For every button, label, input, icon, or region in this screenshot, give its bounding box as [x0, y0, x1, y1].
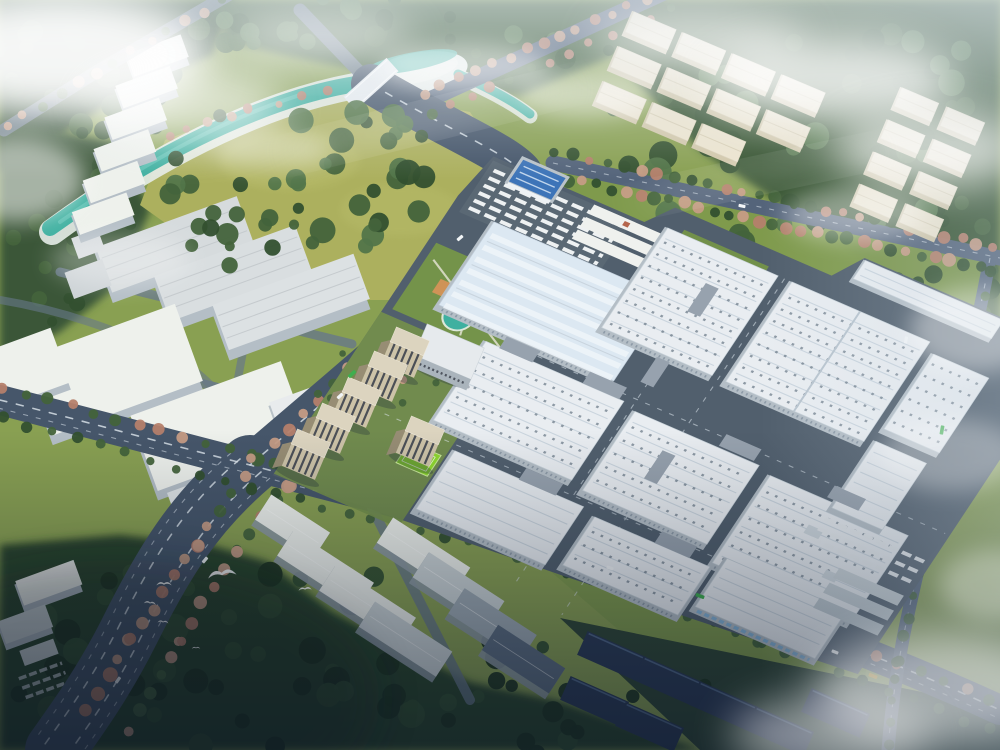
scene-svg [0, 0, 1000, 750]
cloud [705, 38, 955, 122]
cloud [50, 234, 190, 286]
tree [349, 194, 371, 216]
tree [68, 399, 78, 409]
tree [41, 392, 53, 404]
tree [367, 184, 381, 198]
tree [298, 409, 308, 419]
cloud [225, 12, 415, 64]
tree [229, 206, 245, 222]
tree [399, 399, 407, 407]
tree [39, 261, 52, 274]
tree [408, 200, 430, 222]
aerial-render [0, 0, 1000, 750]
tree [306, 236, 319, 249]
tree [724, 211, 734, 221]
tree [606, 186, 617, 197]
tree [339, 350, 346, 357]
tree [289, 220, 299, 230]
tree [621, 186, 633, 198]
tree [314, 390, 322, 398]
tree [109, 414, 121, 426]
cloud [785, 189, 925, 241]
tree [221, 257, 237, 273]
tree [225, 241, 235, 251]
tree [261, 209, 278, 226]
cloud [85, 67, 285, 143]
tree [693, 202, 705, 214]
tree [135, 420, 146, 431]
tree [368, 218, 381, 231]
tree [160, 183, 181, 204]
tree [47, 317, 57, 327]
tree [737, 188, 745, 196]
tree [22, 390, 31, 399]
tree [89, 409, 99, 419]
tree [5, 230, 21, 246]
tree [293, 203, 304, 214]
tree [710, 207, 720, 217]
tree [264, 239, 280, 255]
tree [737, 211, 749, 223]
tree [202, 219, 219, 236]
tree [185, 239, 198, 252]
tree [205, 205, 221, 221]
